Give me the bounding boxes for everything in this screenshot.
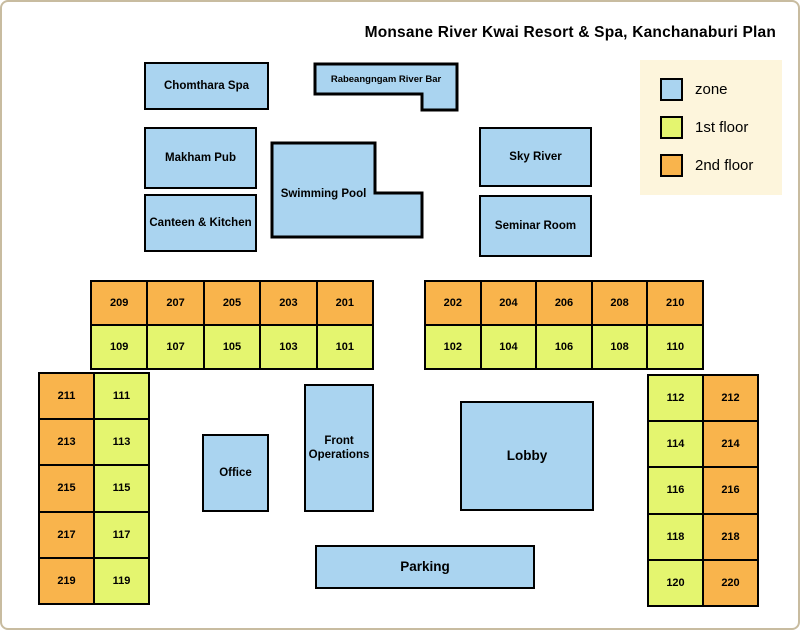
room-213: 213 (40, 420, 93, 464)
page-title: Monsane River Kwai Resort & Spa, Kanchan… (365, 24, 776, 42)
room-204: 204 (482, 282, 536, 324)
room-220: 220 (704, 561, 757, 605)
zone-label: Lobby (507, 448, 548, 465)
room-104: 104 (482, 326, 536, 368)
room-201: 201 (318, 282, 372, 324)
room-119: 119 (95, 559, 148, 603)
zone-canteen-kitchen: Canteen & Kitchen (144, 194, 257, 252)
zone-parking: Parking (315, 545, 535, 589)
zone-seminar-room: Seminar Room (479, 195, 592, 257)
room-211: 211 (40, 374, 93, 418)
room-202: 202 (426, 282, 480, 324)
legend-item-2nd-floor: 2nd floor (660, 154, 782, 177)
room-214: 214 (704, 422, 757, 466)
room-205: 205 (205, 282, 259, 324)
room-219: 219 (40, 559, 93, 603)
room-103: 103 (261, 326, 315, 368)
zone-label: Makham Pub (165, 151, 236, 165)
room-109: 109 (92, 326, 146, 368)
room-108: 108 (593, 326, 647, 368)
legend-swatch-floor2 (660, 154, 683, 177)
room-107: 107 (148, 326, 202, 368)
room-block-east-wing: 112212114214116216118218120220 (647, 374, 759, 607)
legend-swatch-zone (660, 78, 683, 101)
room-112: 112 (649, 376, 702, 420)
zone-label: Rabeangngam River Bar (315, 64, 457, 94)
zone-lobby: Lobby (460, 401, 594, 511)
room-218: 218 (704, 515, 757, 559)
zone-label: Sky River (509, 150, 561, 164)
zone-label: Parking (400, 559, 450, 576)
room-118: 118 (649, 515, 702, 559)
zone-makham-pub: Makham Pub (144, 127, 257, 189)
zone-label: Seminar Room (495, 219, 576, 233)
legend-label: 1st floor (695, 119, 748, 136)
room-110: 110 (648, 326, 702, 368)
room-216: 216 (704, 468, 757, 512)
zone-river-bar: Rabeangngam River Bar (315, 64, 457, 110)
room-114: 114 (649, 422, 702, 466)
room-block-north-west: 209207205203201109107105103101 (90, 280, 374, 370)
room-215: 215 (40, 466, 93, 510)
room-block-west-wing: 211111213113215115217117219119 (38, 372, 150, 605)
legend-item-zone: zone (660, 78, 782, 101)
room-115: 115 (95, 466, 148, 510)
room-101: 101 (318, 326, 372, 368)
zone-label: Front Operations (309, 434, 370, 463)
room-116: 116 (649, 468, 702, 512)
room-105: 105 (205, 326, 259, 368)
room-208: 208 (593, 282, 647, 324)
room-203: 203 (261, 282, 315, 324)
legend-swatch-floor1 (660, 116, 683, 139)
room-106: 106 (537, 326, 591, 368)
zone-swimming-pool: Swimming Pool (272, 143, 422, 237)
zone-front-operations: Front Operations (304, 384, 374, 512)
zone-label: Chomthara Spa (164, 79, 249, 93)
room-212: 212 (704, 376, 757, 420)
legend-label: 2nd floor (695, 157, 753, 174)
room-block-north-east: 202204206208210102104106108110 (424, 280, 704, 370)
room-207: 207 (148, 282, 202, 324)
room-210: 210 (648, 282, 702, 324)
room-102: 102 (426, 326, 480, 368)
legend: zone1st floor2nd floor (640, 60, 782, 195)
legend-item-1st-floor: 1st floor (660, 116, 782, 139)
zone-label: Office (219, 466, 252, 480)
room-209: 209 (92, 282, 146, 324)
room-120: 120 (649, 561, 702, 605)
zone-label: Swimming Pool (272, 181, 375, 207)
resort-plan: Monsane River Kwai Resort & Spa, Kanchan… (0, 0, 800, 630)
zone-sky-river: Sky River (479, 127, 592, 187)
zone-office: Office (202, 434, 269, 512)
room-217: 217 (40, 513, 93, 557)
room-206: 206 (537, 282, 591, 324)
room-113: 113 (95, 420, 148, 464)
room-117: 117 (95, 513, 148, 557)
room-111: 111 (95, 374, 148, 418)
zone-label: Canteen & Kitchen (149, 216, 251, 230)
zone-chomthara-spa: Chomthara Spa (144, 62, 269, 110)
legend-label: zone (695, 81, 728, 98)
